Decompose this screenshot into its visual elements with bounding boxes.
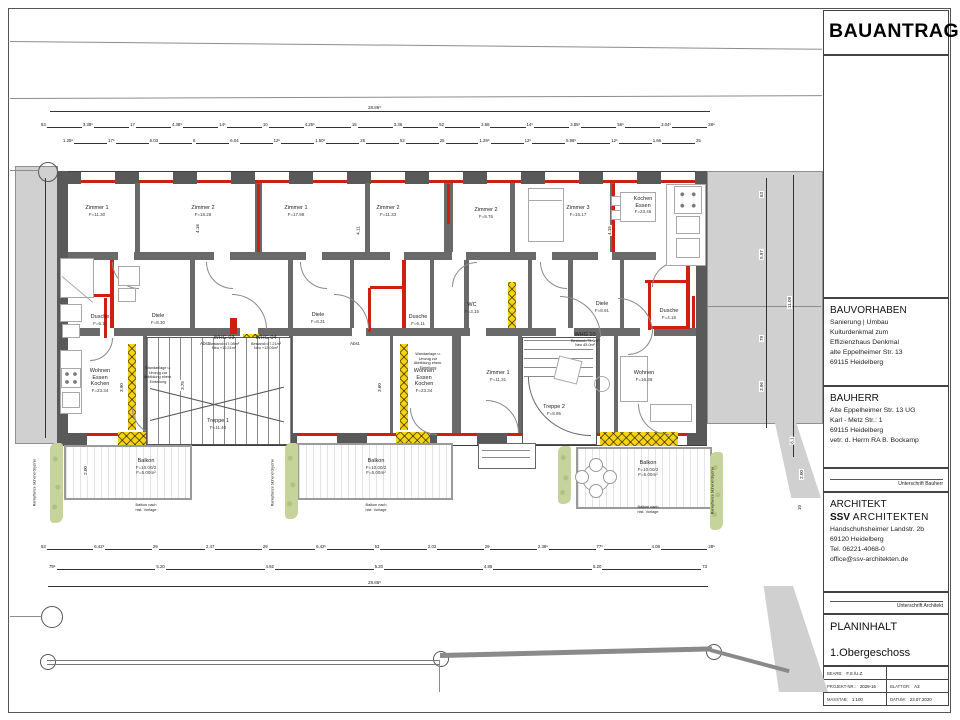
cell-value: F.S./U.Z. <box>846 671 863 676</box>
signature-rule <box>830 601 943 602</box>
dimension-row: 536.42⁵292.47296.42⁵532.02292.36⁵77⁵4.08… <box>40 543 716 551</box>
dim-value: 12⁵ <box>524 138 533 144</box>
cell-label: PROJEKT-NR.: <box>827 684 856 689</box>
dim-total-bottom: 28.86⁵ <box>366 580 383 585</box>
whg-label: WHG 03 Bestand=47.08m² Neu +10.21m² <box>209 335 239 351</box>
sofa-outline <box>650 404 692 422</box>
door-opening <box>100 328 114 336</box>
plan-sheet: BAUANTRAG BAUVORHABEN Sanierung | Umbau … <box>0 0 960 720</box>
stove-fixture <box>61 368 81 388</box>
partition-wall <box>135 183 140 252</box>
room-area: F=8.95 <box>543 411 565 417</box>
titleblock-bauherr: BAUHERR Alte Eppelheimer Str. 13 UG Karl… <box>823 386 949 468</box>
new-wall-red <box>447 184 450 224</box>
balcony-name: Balkon <box>366 458 386 465</box>
dim-value: 4.16 <box>195 223 200 234</box>
table-cell-bearb: BEARB: F.S./U.Z. <box>824 667 887 680</box>
firm-name-bold: SSV <box>830 512 850 523</box>
wc-fixture <box>62 324 80 338</box>
room-area: F=11.30 <box>85 212 108 218</box>
dim-value: 6 <box>192 138 196 144</box>
bath-fixture <box>118 288 136 302</box>
signature-bauherr: Unterschrift Bauherr <box>823 468 949 492</box>
dim-value: 1.66 <box>652 138 662 144</box>
dim-value: 3.36 <box>393 122 403 128</box>
abst-label: Abst. <box>200 341 210 346</box>
dim-value: 6.04 <box>229 138 239 144</box>
note-line: Wandanlage u. <box>144 366 173 371</box>
door-opening <box>536 252 552 260</box>
dim-value: 6.1 <box>790 436 795 444</box>
cell-label: DATUM: <box>890 697 906 702</box>
dim-value: 3.75 <box>180 380 185 391</box>
room-label: Diele F=8.91 <box>595 301 609 313</box>
room-area: F=3.15 <box>465 309 479 315</box>
new-wall-red <box>650 326 690 329</box>
balcony-area: F=5.00m² <box>136 470 156 476</box>
signature-caption: Unterschrift Architekt <box>897 603 943 609</box>
room-name: Kochen <box>414 381 434 388</box>
partition-wall <box>430 260 434 328</box>
dim-value: 2.00 <box>799 469 804 480</box>
balcony-note: Balkon nach hist. Vorlage <box>638 505 659 514</box>
note-line: Wandanlage u. <box>414 352 443 357</box>
table-cell-masstab: MASSTAB: 1:100 <box>824 693 887 706</box>
room-area: F=6.11 <box>91 321 110 327</box>
section-line: Handschuhsheimer Landstr. 2b <box>830 525 942 535</box>
cell-value: 23.07.2020 <box>910 697 932 702</box>
partition-wall <box>288 260 293 328</box>
dim-value: 4.25⁵ <box>304 122 316 128</box>
abst-label: Abst. <box>350 341 360 346</box>
room-name: Dusche <box>660 308 679 315</box>
dim-value: 17⁵ <box>107 138 116 144</box>
dim-line <box>50 111 710 112</box>
titleblock-stamp-area <box>823 55 949 298</box>
dim-value: 28⁵ <box>707 122 716 128</box>
whg-name: WHG 03 <box>209 335 239 342</box>
titleblock-bauvorhaben: BAUVORHABEN Sanierung | Umbau Kulturdenk… <box>823 298 949 386</box>
door-opening <box>214 252 230 260</box>
room-label: Treppe 1 F=11.40 <box>207 418 229 430</box>
room-label: Zimmer 2 F=18.28 <box>191 205 214 217</box>
room-area: F=4.18 <box>660 315 679 321</box>
dimension-row: 79⁵5.204.925.204.855.2073 <box>48 563 708 571</box>
side-table <box>594 376 610 392</box>
dim-value: 25 <box>359 138 366 144</box>
dim-value: 53 <box>40 122 47 128</box>
room-label: Kochen Essen F=23.45 <box>634 196 653 215</box>
dim-value: 11.08 <box>787 296 792 309</box>
dimension-row: 533.38⁵174.38⁵14⁵104.25⁵153.36522.8814⁵3… <box>40 121 716 129</box>
dim-value: 2.36⁵ <box>537 544 549 550</box>
balcony-note: Balkon nach hist. Vorlage <box>136 503 157 512</box>
corridor-wall-lower <box>68 328 696 336</box>
dim-value: 5.20 <box>374 564 384 570</box>
balcony-note-line: hist. Vorlage <box>366 508 387 513</box>
plant-note: Rankpflanze blühend Glyzinie <box>710 466 715 516</box>
door-opening <box>352 328 366 336</box>
room-name: Diele <box>311 312 325 319</box>
dim-value: 3.85⁵ <box>569 122 581 128</box>
door-opening <box>452 252 466 260</box>
neighbor-building-right <box>707 171 823 424</box>
room-label: Zimmer 2 F=11.33 <box>376 205 399 217</box>
titleblock-info-table: BEARB: F.S./U.Z. PROJEKT-NR.: 2029-16 BL… <box>823 666 949 706</box>
dim-line <box>48 586 708 587</box>
firm-name-rest: ARCHITEKTEN <box>853 512 929 523</box>
section-heading: BAUVORHABEN <box>830 305 942 316</box>
room-name: Zimmer 1 <box>486 370 509 377</box>
dim-value: 2.88 <box>480 122 490 128</box>
stove-fixture <box>674 186 702 214</box>
room-area: F=8.91 <box>595 308 609 314</box>
room-label: Zimmer 1 F=11.31 <box>486 370 509 382</box>
room-area: F=11.40 <box>207 425 229 431</box>
survey-marker <box>38 162 58 182</box>
room-label: Treppe 2 F=8.95 <box>543 404 565 416</box>
whg-neu: Neu 45.0m² <box>571 343 599 348</box>
survey-tie-line <box>10 616 42 617</box>
room-area: F=9.76 <box>474 214 497 220</box>
dim-value: 25 <box>695 138 702 144</box>
dim-value: 3.38⁵ <box>82 122 94 128</box>
dim-value: 5.97 <box>759 249 764 260</box>
door-opening <box>306 252 322 260</box>
balcony-note-line: Balkon nach <box>136 503 157 508</box>
entrance-step-line <box>482 450 530 451</box>
room-label: Wohnen Essen Kochen F=23.34 <box>414 368 434 393</box>
dim-value: 4.38⁵ <box>171 122 183 128</box>
signature-rule <box>830 479 943 480</box>
section-line: Sanierung | Umbau <box>830 318 942 328</box>
room-area: F=17.98 <box>284 212 307 218</box>
titleblock-architekt: ARCHITEKT SSV ARCHITEKTEN Handschuhsheim… <box>823 492 949 592</box>
dim-value: 15 <box>351 122 358 128</box>
dim-value: 29 <box>152 544 159 550</box>
bed-outline <box>528 188 564 242</box>
dim-value: 52 <box>438 122 445 128</box>
room-area: F=16.38 <box>634 377 654 383</box>
balcony-label: Balkon F=10.00/2 F=5.00m² <box>136 458 156 476</box>
plant-note: Rankpflanze blühend Glyzinie <box>32 458 37 508</box>
door-opening <box>390 252 404 260</box>
room-label: Zimmer 1 F=17.98 <box>284 205 307 217</box>
table-cell-projekt: PROJEKT-NR.: 2029-16 <box>824 680 887 693</box>
section-line: Karl - Metz Str.: 1 <box>830 416 942 426</box>
room-area: F=23.34 <box>90 388 110 394</box>
cell-value: 1:100 <box>852 697 863 702</box>
balcony-chair <box>589 458 603 472</box>
signature-architekt: Unterschrift Architekt <box>823 592 949 614</box>
dim-value: 12⁵ <box>610 138 619 144</box>
dim-value: 79 <box>759 335 764 342</box>
titleblock-bauantrag: BAUANTRAG <box>823 10 949 55</box>
section-heading: ARCHITEKT <box>830 499 942 510</box>
plant-note: Rankpflanze blühend Glyzinie <box>270 458 275 508</box>
door-opening <box>470 328 486 336</box>
entrance-step-line <box>482 457 530 458</box>
dim-value: 3.04⁵ <box>660 122 672 128</box>
room-name: Zimmer 2 <box>474 207 497 214</box>
room-name: Dusche <box>91 314 110 321</box>
room-area: F=8.31 <box>311 319 325 325</box>
dim-value: 3.96 <box>759 381 764 392</box>
partition-wall <box>510 183 515 252</box>
dim-total-top: 28.86⁵ <box>366 105 383 110</box>
dim-value: 25 <box>439 138 446 144</box>
plan-content: 1.Obergeschoss <box>830 647 942 659</box>
section-line: alte Eppelheimer Str. 13 <box>830 348 942 358</box>
dim-value: 6.03 <box>149 138 159 144</box>
section-line: 69120 Heidelberg <box>830 535 942 545</box>
room-label: Wohnen F=16.38 <box>634 370 654 382</box>
reference-line <box>439 660 440 692</box>
dimension-row: 1.25⁵17⁵6.0366.0412⁵1.50⁵2552251.29⁵12⁵5… <box>62 137 702 145</box>
dim-line-vertical <box>45 178 46 438</box>
room-area: F=15.17 <box>566 212 589 218</box>
cell-label: MASSTAB: <box>827 697 848 702</box>
bath-fixture <box>118 266 140 286</box>
dim-line-vertical <box>793 175 794 457</box>
room-area: F=11.31 <box>486 377 509 383</box>
dim-value: 2.02 <box>427 544 437 550</box>
neighbor-building-left <box>15 166 58 444</box>
dim-value: 3.60 <box>377 382 382 393</box>
partition-wall <box>614 336 618 433</box>
kitchen-cabinet <box>676 238 700 258</box>
room-name: Wohnen <box>90 368 110 375</box>
dim-value: 53 <box>40 544 47 550</box>
sink-fixture <box>676 216 700 234</box>
plant-strip <box>50 443 63 523</box>
room-label: Wohnen Essen Kochen F=23.34 <box>90 368 110 393</box>
dim-value: 52 <box>399 138 406 144</box>
room-name: Zimmer 3 <box>566 205 589 212</box>
demolition-wall <box>400 344 408 430</box>
section-line: 69115 Heidelberg <box>830 426 942 436</box>
door-opening <box>598 252 612 260</box>
cell-value: A3 <box>914 684 919 689</box>
balcony-chair <box>603 470 617 484</box>
neighbor-divider-line <box>707 306 821 307</box>
dim-value: 12⁵ <box>273 138 282 144</box>
dim-value: 6.42⁵ <box>93 544 105 550</box>
note-line: Einteilung <box>414 366 443 371</box>
balcony-note-line: hist. Vorlage <box>638 510 659 515</box>
room-name: Treppe 2 <box>543 404 565 411</box>
signature-caption: Unterschrift Bauherr <box>898 481 943 487</box>
table-cell-datum: DATUM: 23.07.2020 <box>887 693 949 706</box>
section-line: vetr. d. Herrn RA B. Bockamp <box>830 436 942 446</box>
section-line: office@ssv-architekten.de <box>830 555 942 565</box>
cell-value: 2029-16 <box>860 684 876 689</box>
dim-value: 4.85 <box>483 564 493 570</box>
balcony-note-line: Balkon nach <box>366 503 387 508</box>
cell-label: BLATTGR: <box>890 684 910 689</box>
balcony-note-line: Balkon nach <box>638 505 659 510</box>
section-line: Alte Eppelheimer Str. 13 UG <box>830 406 942 416</box>
dim-value: 1.29⁵ <box>478 138 490 144</box>
new-wall-red <box>257 184 260 252</box>
dim-value: 5.20 <box>155 564 165 570</box>
room-name: Diele <box>595 301 609 308</box>
dim-value: 14⁵ <box>526 122 535 128</box>
new-wall-red <box>692 296 695 328</box>
balcony-chair <box>575 470 589 484</box>
room-area: F=18.28 <box>191 212 214 218</box>
washbasin-fixture <box>60 304 82 322</box>
new-wall-red <box>370 286 404 289</box>
sink-fixture <box>62 392 80 408</box>
dim-value: 17 <box>129 122 136 128</box>
room-name: Kochen <box>90 381 110 388</box>
section-line: 69115 Heidelberg <box>830 358 942 368</box>
dim-value: 79⁵ <box>48 564 57 570</box>
dim-value: 1.25⁵ <box>62 138 74 144</box>
section-line: Tel. 06221-4068-0 <box>830 545 942 555</box>
dim-value: 14⁵ <box>218 122 227 128</box>
bed-pillow-line <box>528 200 562 201</box>
partition-wall <box>190 260 195 328</box>
dim-value: 77⁵ <box>596 544 605 550</box>
dim-value: 5.20 <box>592 564 602 570</box>
room-name: Wohnen <box>634 370 654 377</box>
demolition-wall <box>508 282 516 328</box>
dim-value: 4.11 <box>356 225 361 235</box>
dim-value: 3.90 <box>119 382 124 393</box>
chair <box>611 196 621 206</box>
partition-wall <box>365 183 370 252</box>
balcony-area: F=5.00m² <box>638 472 658 478</box>
partition-wall <box>528 260 532 328</box>
dim-value: 1.50⁵ <box>314 138 326 144</box>
dim-value: 29 <box>484 544 491 550</box>
dim-value: 56⁵ <box>616 122 625 128</box>
room-label: Zimmer 3 F=15.17 <box>566 205 589 217</box>
dim-value: 5.98⁵ <box>565 138 577 144</box>
apartment-wall <box>452 336 461 433</box>
room-name: Diele <box>151 313 165 320</box>
plant-strip <box>558 446 571 504</box>
room-name: Zimmer 1 <box>85 205 108 212</box>
balcony-label: Balkon F=10.00/2 F=5.00m² <box>366 458 386 476</box>
dim-value: 2.47 <box>205 544 215 550</box>
room-label: Dusche F=6.11 <box>91 314 110 326</box>
balcony-label: Balkon F=10.00/2 F=5.00m² <box>638 460 658 478</box>
room-area: F=11.33 <box>376 212 399 218</box>
room-label: Zimmer 2 F=9.76 <box>474 207 497 219</box>
section-heading: PLANINHALT <box>830 621 942 633</box>
titleblock-planinhalt: PLANINHALT 1.Obergeschoss <box>823 614 949 666</box>
room-label: Diele F=8.31 <box>311 312 325 324</box>
room-label: Diele F=8.30 <box>151 313 165 325</box>
balcony-name: Balkon <box>638 460 658 467</box>
table-cell-empty <box>887 667 949 680</box>
dim-value: 10 <box>797 504 802 511</box>
balcony-chair <box>589 484 603 498</box>
firm-name: SSV ARCHITEKTEN <box>830 512 942 523</box>
property-line-double <box>47 660 439 665</box>
section-heading: BAUHERR <box>830 393 942 404</box>
table-cell-blatt: BLATTGR: A3 <box>887 680 949 693</box>
room-label: Dusche F=4.18 <box>660 308 679 320</box>
chair <box>611 210 621 220</box>
room-name: Treppe 1 <box>207 418 229 425</box>
balcony-note-line: hist. Vorlage <box>136 508 157 513</box>
room-area: F=8.30 <box>151 320 165 326</box>
partition-wall <box>390 336 393 433</box>
balcony-area: F=5.00m² <box>366 470 386 476</box>
room-label: WC F=3.15 <box>465 302 479 314</box>
room-name: Zimmer 2 <box>376 205 399 212</box>
room-label: Zimmer 1 F=11.30 <box>85 205 108 217</box>
plant-strip <box>285 443 298 519</box>
whg-label: WHG 04 Bestand=47.21m² Neu +12.03m² <box>251 335 281 351</box>
room-name: Kochen <box>634 196 653 203</box>
dim-value: 2.00 <box>83 465 88 476</box>
new-wall-red <box>686 260 690 328</box>
door-opening <box>118 252 134 260</box>
section-line: Effizienzhaus Denkmal <box>830 338 942 348</box>
dim-value: 10 <box>262 122 269 128</box>
dim-value: 28⁵ <box>707 544 716 550</box>
room-name: Dusche <box>409 314 428 321</box>
dim-value: 4.15 <box>607 225 612 236</box>
room-area: F=6.11 <box>409 321 428 327</box>
dim-value: 73 <box>701 564 708 570</box>
new-wall-red <box>402 260 406 328</box>
survey-marker <box>41 606 63 628</box>
cell-label: BEARB: <box>827 671 842 676</box>
whg-name: WHG 10 <box>571 332 599 339</box>
whg-neu: Neu +12.03m² <box>251 346 281 351</box>
entrance-steps <box>478 443 536 469</box>
room-name: Zimmer 1 <box>284 205 307 212</box>
room-name: Zimmer 2 <box>191 205 214 212</box>
demolition-note: Wandanlage u. Umzug zur Abbildung ehem. … <box>414 352 443 370</box>
room-area: F=23.45 <box>634 209 653 215</box>
balcony-name: Balkon <box>136 458 156 465</box>
note-line: Einteilung <box>144 380 173 385</box>
dim-value: 53 <box>374 544 381 550</box>
whg-neu: Neu +10.21m² <box>209 346 239 351</box>
demolition-note: Wandanlage u. Umzug zur Abbildung ehem. … <box>144 366 173 384</box>
dim-value: 4.92 <box>265 564 275 570</box>
room-label: Dusche F=6.11 <box>409 314 428 326</box>
dim-value: 63 <box>759 191 764 198</box>
whg-name: WHG 04 <box>251 335 281 342</box>
survey-tie-line <box>10 170 39 171</box>
whg-label: WHG 10 Bestand=75.6m² Neu 45.0m² <box>571 332 599 348</box>
section-line: Kulturdenkmal zum <box>830 328 942 338</box>
dim-value: 4.08 <box>651 544 661 550</box>
dim-value: 29 <box>262 544 269 550</box>
room-area: F=23.34 <box>414 388 434 394</box>
balcony-note: Balkon nach hist. Vorlage <box>366 503 387 512</box>
sheet-title: BAUANTRAG <box>824 11 948 43</box>
dim-line-vertical <box>766 178 767 428</box>
dim-value: 6.42⁵ <box>315 544 327 550</box>
